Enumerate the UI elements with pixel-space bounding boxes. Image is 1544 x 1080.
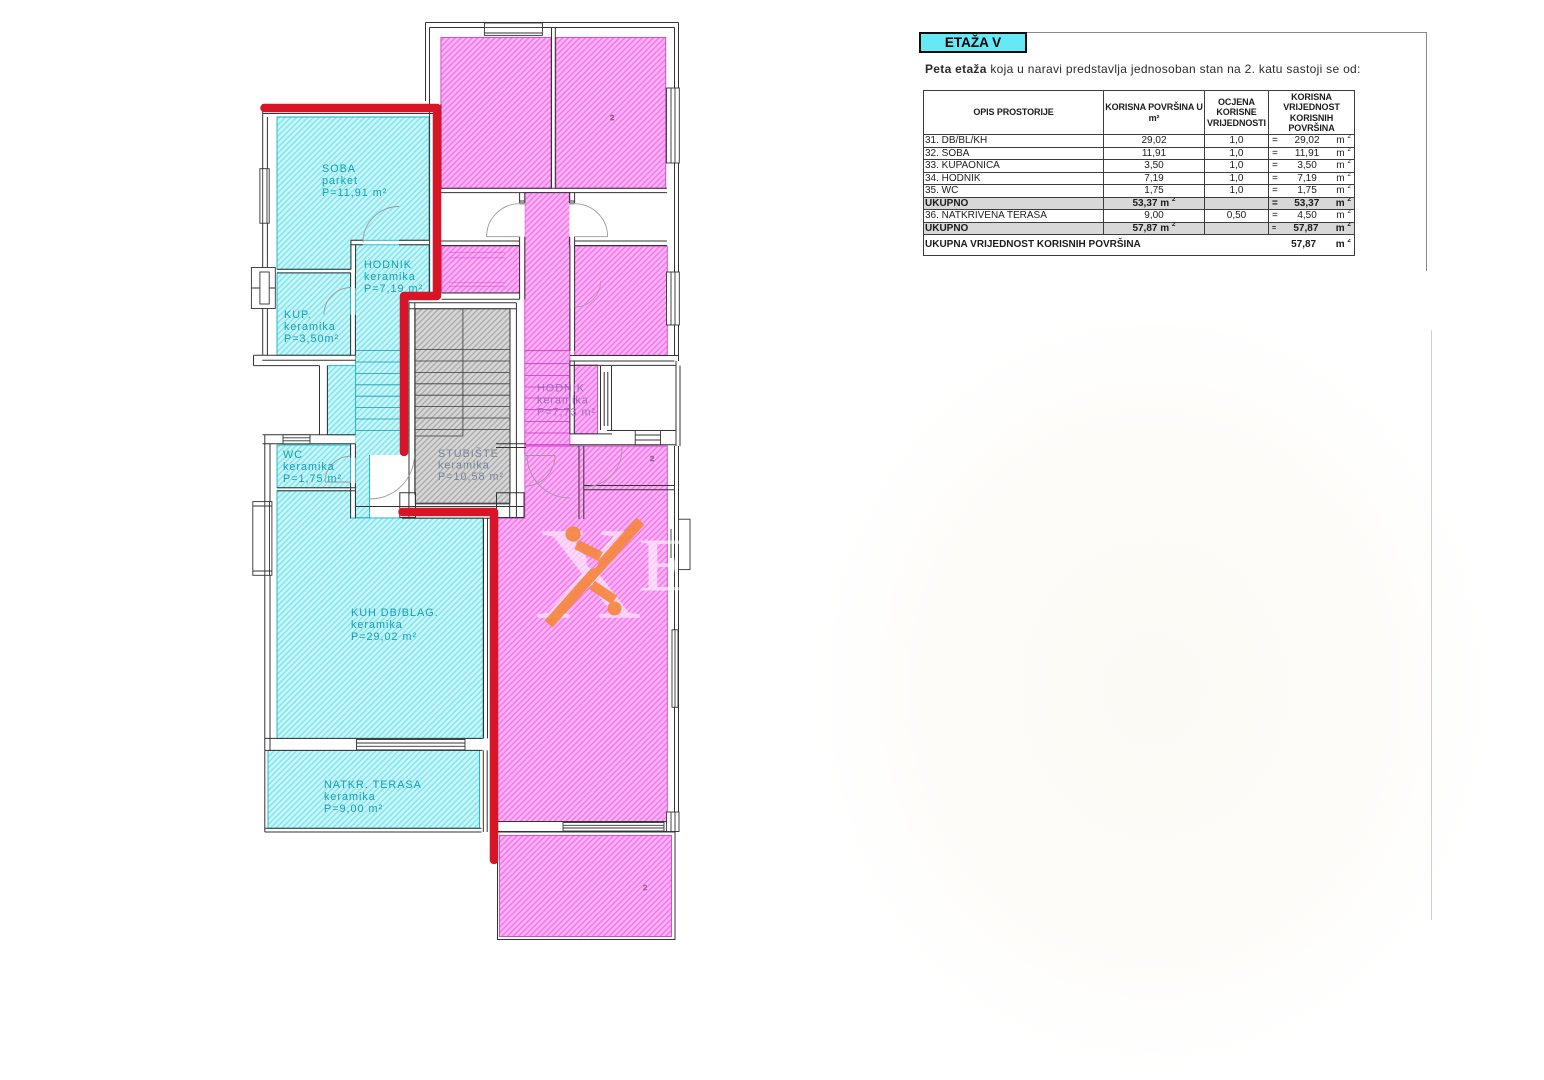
svg-text:HODNIK: HODNIK (364, 259, 412, 271)
svg-text:P=1,75 m²: P=1,75 m² (283, 473, 342, 485)
svg-text:STUBIŠTE: STUBIŠTE (438, 447, 499, 460)
svg-text:KUH DB/BLAG.: KUH DB/BLAG. (351, 607, 439, 619)
svg-text:2: 2 (650, 454, 654, 463)
svg-text:P=7,73 m²: P=7,73 m² (537, 407, 596, 419)
svg-text:keramika: keramika (324, 791, 376, 803)
svg-text:2: 2 (643, 883, 647, 892)
svg-text:P=11,91 m²: P=11,91 m² (322, 187, 387, 199)
svg-text:P=29,02 m²: P=29,02 m² (351, 631, 417, 643)
svg-text:P=3,50m²: P=3,50m² (284, 333, 339, 345)
svg-text:keramika: keramika (351, 619, 403, 631)
svg-text:parket: parket (322, 175, 358, 187)
svg-text:E: E (638, 523, 695, 607)
svg-text:keramika: keramika (537, 395, 589, 407)
svg-text:SOBA: SOBA (322, 163, 356, 175)
svg-text:2: 2 (610, 113, 614, 122)
svg-text:HODNIK: HODNIK (537, 383, 585, 395)
svg-text:P=10,58 m²: P=10,58 m² (438, 471, 504, 483)
svg-text:NATKR. TERASA: NATKR. TERASA (324, 779, 422, 791)
svg-text:keramika: keramika (438, 460, 490, 472)
svg-text:KUP.: KUP. (284, 309, 312, 321)
svg-text:keramika: keramika (284, 321, 336, 333)
svg-text:P=9,00 m²: P=9,00 m² (324, 803, 383, 815)
svg-text:keramika: keramika (283, 461, 335, 473)
svg-text:WC: WC (283, 449, 303, 461)
svg-text:keramika: keramika (364, 271, 416, 283)
